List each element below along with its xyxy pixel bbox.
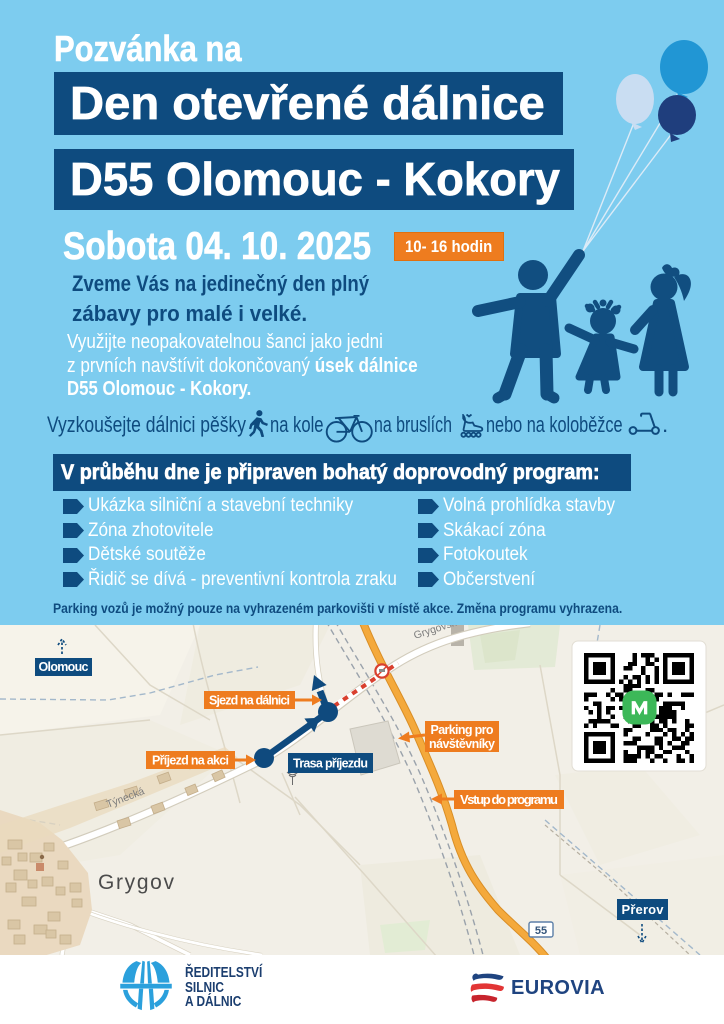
svg-text:55: 55 <box>535 925 547 937</box>
svg-text:Grygov: Grygov <box>98 871 175 894</box>
svg-text:Olomouc: Olomouc <box>39 660 89 674</box>
svg-text:návštěvníky: návštěvníky <box>429 737 495 751</box>
svg-text:Sjezd na dálnici: Sjezd na dálnici <box>209 694 290 708</box>
svg-text:Trasa příjezdu: Trasa příjezdu <box>293 757 368 771</box>
svg-text:Příjezd na akci: Příjezd na akci <box>152 754 229 768</box>
svg-text:Přerov: Přerov <box>622 902 665 917</box>
svg-text:Parking pro: Parking pro <box>431 723 494 737</box>
svg-text:Vstup do programu: Vstup do programu <box>460 792 558 807</box>
